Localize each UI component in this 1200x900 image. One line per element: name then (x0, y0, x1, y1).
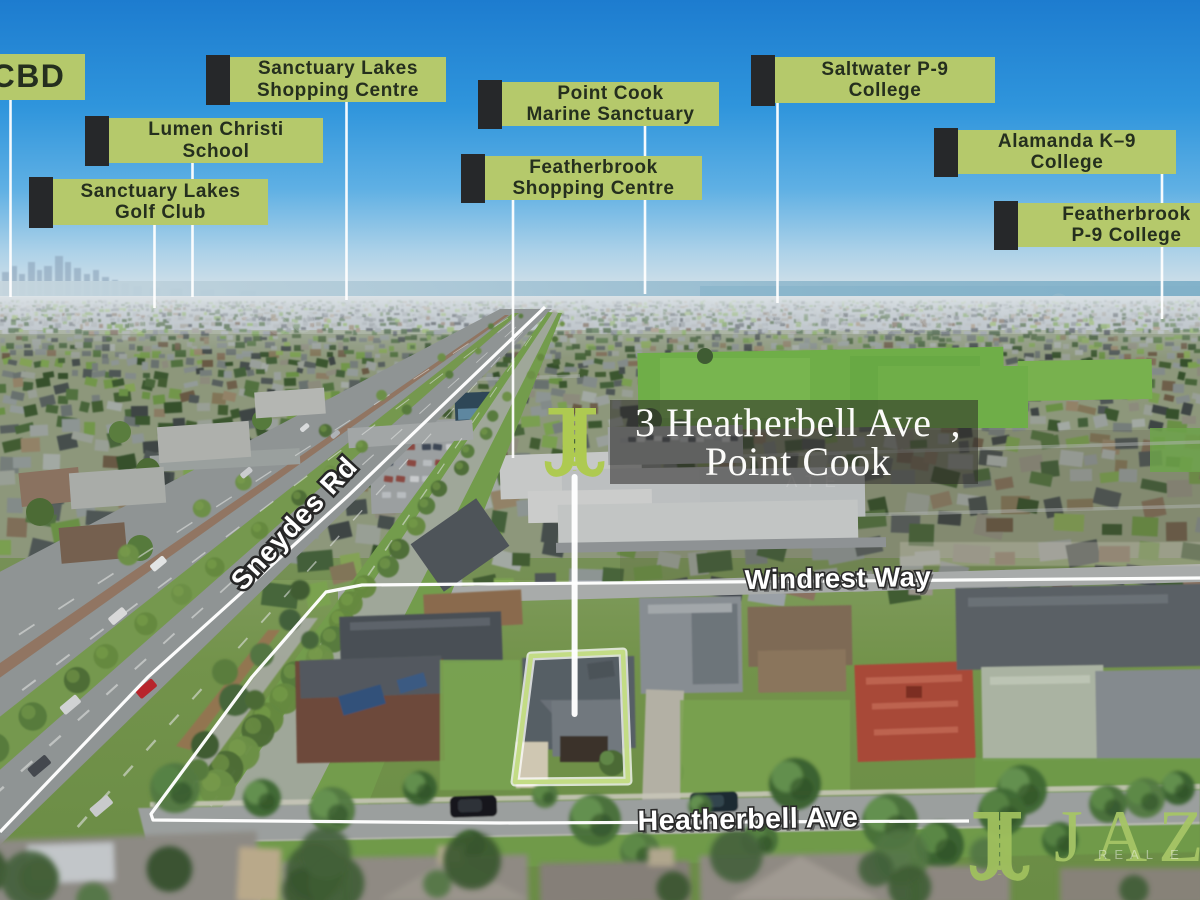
svg-text:JAZ: JAZ (1054, 796, 1200, 878)
svg-text:REAL E: REAL E (1098, 847, 1186, 862)
svg-text:Heatherbell Ave: Heatherbell Ave (637, 802, 858, 838)
svg-text:Windrest Way: Windrest Way (744, 561, 931, 595)
